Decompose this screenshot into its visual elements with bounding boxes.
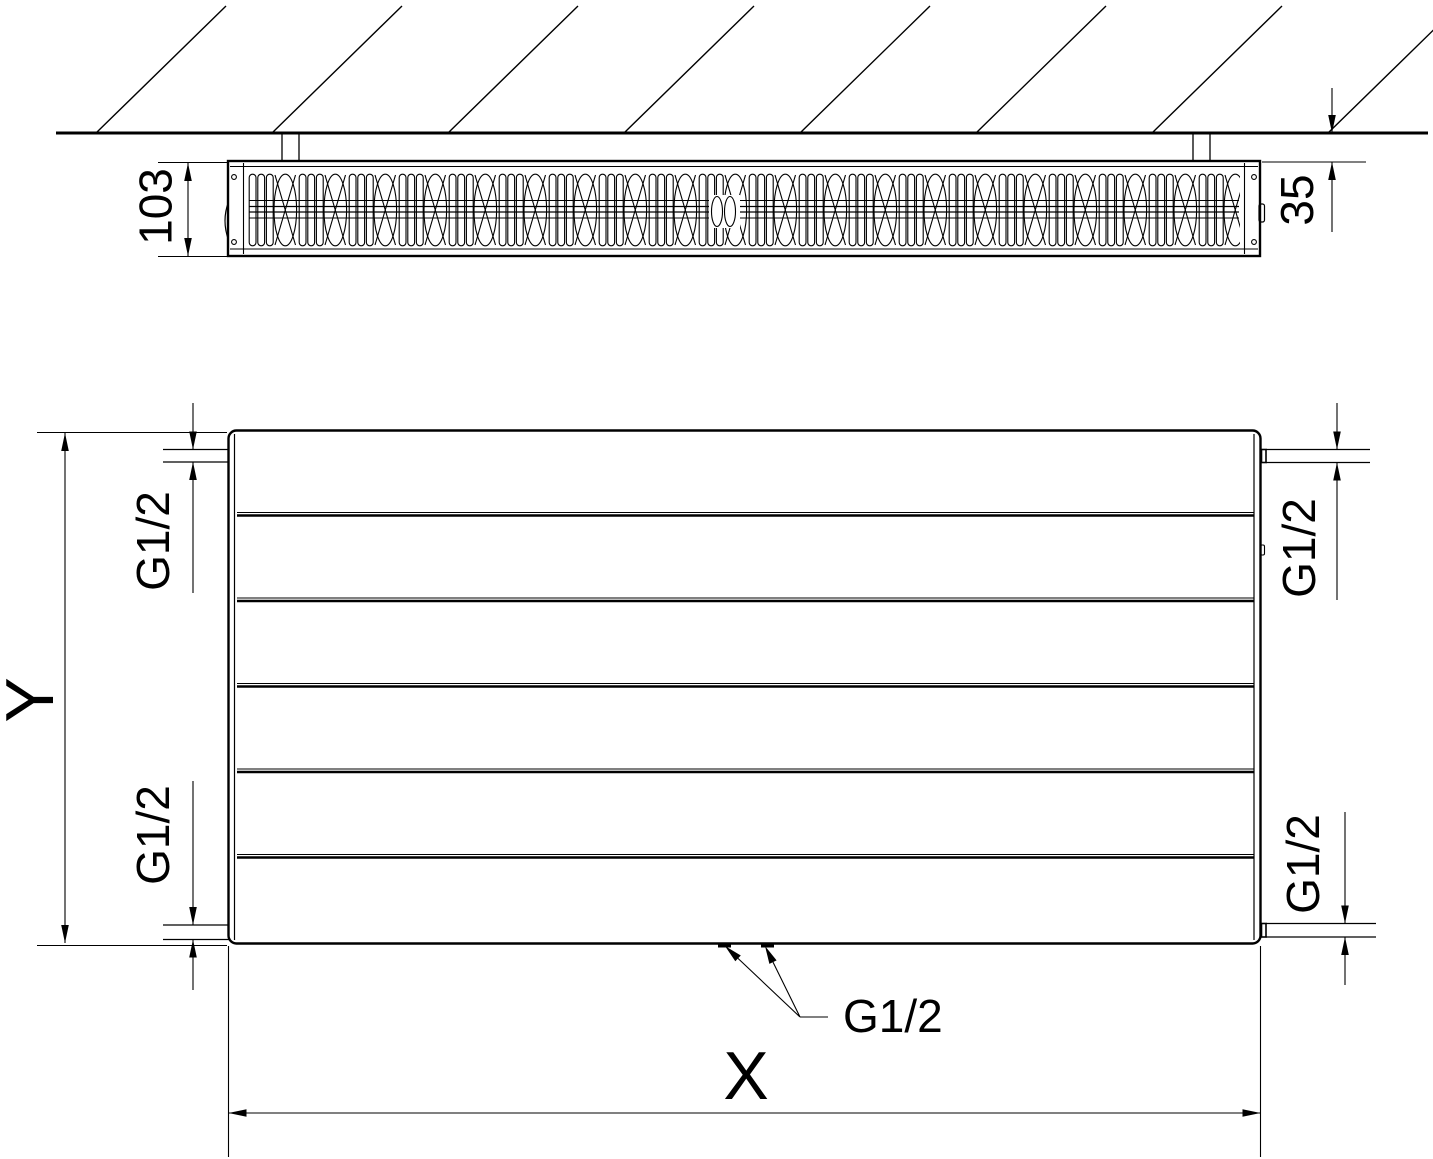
conn-top-right-label: G1/2 [1273,498,1325,598]
radiator-technical-drawing: 103 35 [0,0,1433,1159]
radiator-panel-front [229,431,1265,946]
dimension-conn-bottom-left: G1/2 [127,781,197,990]
connection-stub-top-left [163,450,229,463]
conn-bottom-center-label: G1/2 [843,990,943,1042]
height-label: Y [0,677,68,722]
dimension-conn-bottom-right: G1/2 [1277,812,1349,985]
wall-distance-label: 35 [1271,174,1323,225]
drawing-svg: 103 35 [0,0,1433,1159]
wall-hatching-icon [96,6,1433,133]
mounting-brackets [282,134,1210,160]
conn-bottom-right-label: G1/2 [1277,814,1329,914]
connection-stub-bottom-left [163,925,229,940]
connection-stub-bottom-right [1262,924,1377,938]
conn-bottom-left-label: G1/2 [127,785,179,885]
width-label: X [723,1038,768,1114]
connection-stub-top-right [1262,450,1371,463]
dimension-conn-top-left: G1/2 [127,403,197,593]
dimension-conn-bottom-center: G1/2 [725,946,943,1042]
dimension-wall-distance: 35 [1262,88,1366,232]
top-view: 103 35 [56,6,1433,257]
depth-label: 103 [130,168,182,245]
convector-fins [248,173,1240,247]
conn-top-left-label: G1/2 [127,491,179,591]
panel-grooves [237,513,1254,858]
dimension-depth: 103 [130,163,229,257]
dimension-width-x: X [229,946,1261,1157]
front-view: G1/2 G1/2 G1/2 G1/2 Y [0,403,1376,1157]
dimension-conn-top-right: G1/2 [1273,403,1341,600]
